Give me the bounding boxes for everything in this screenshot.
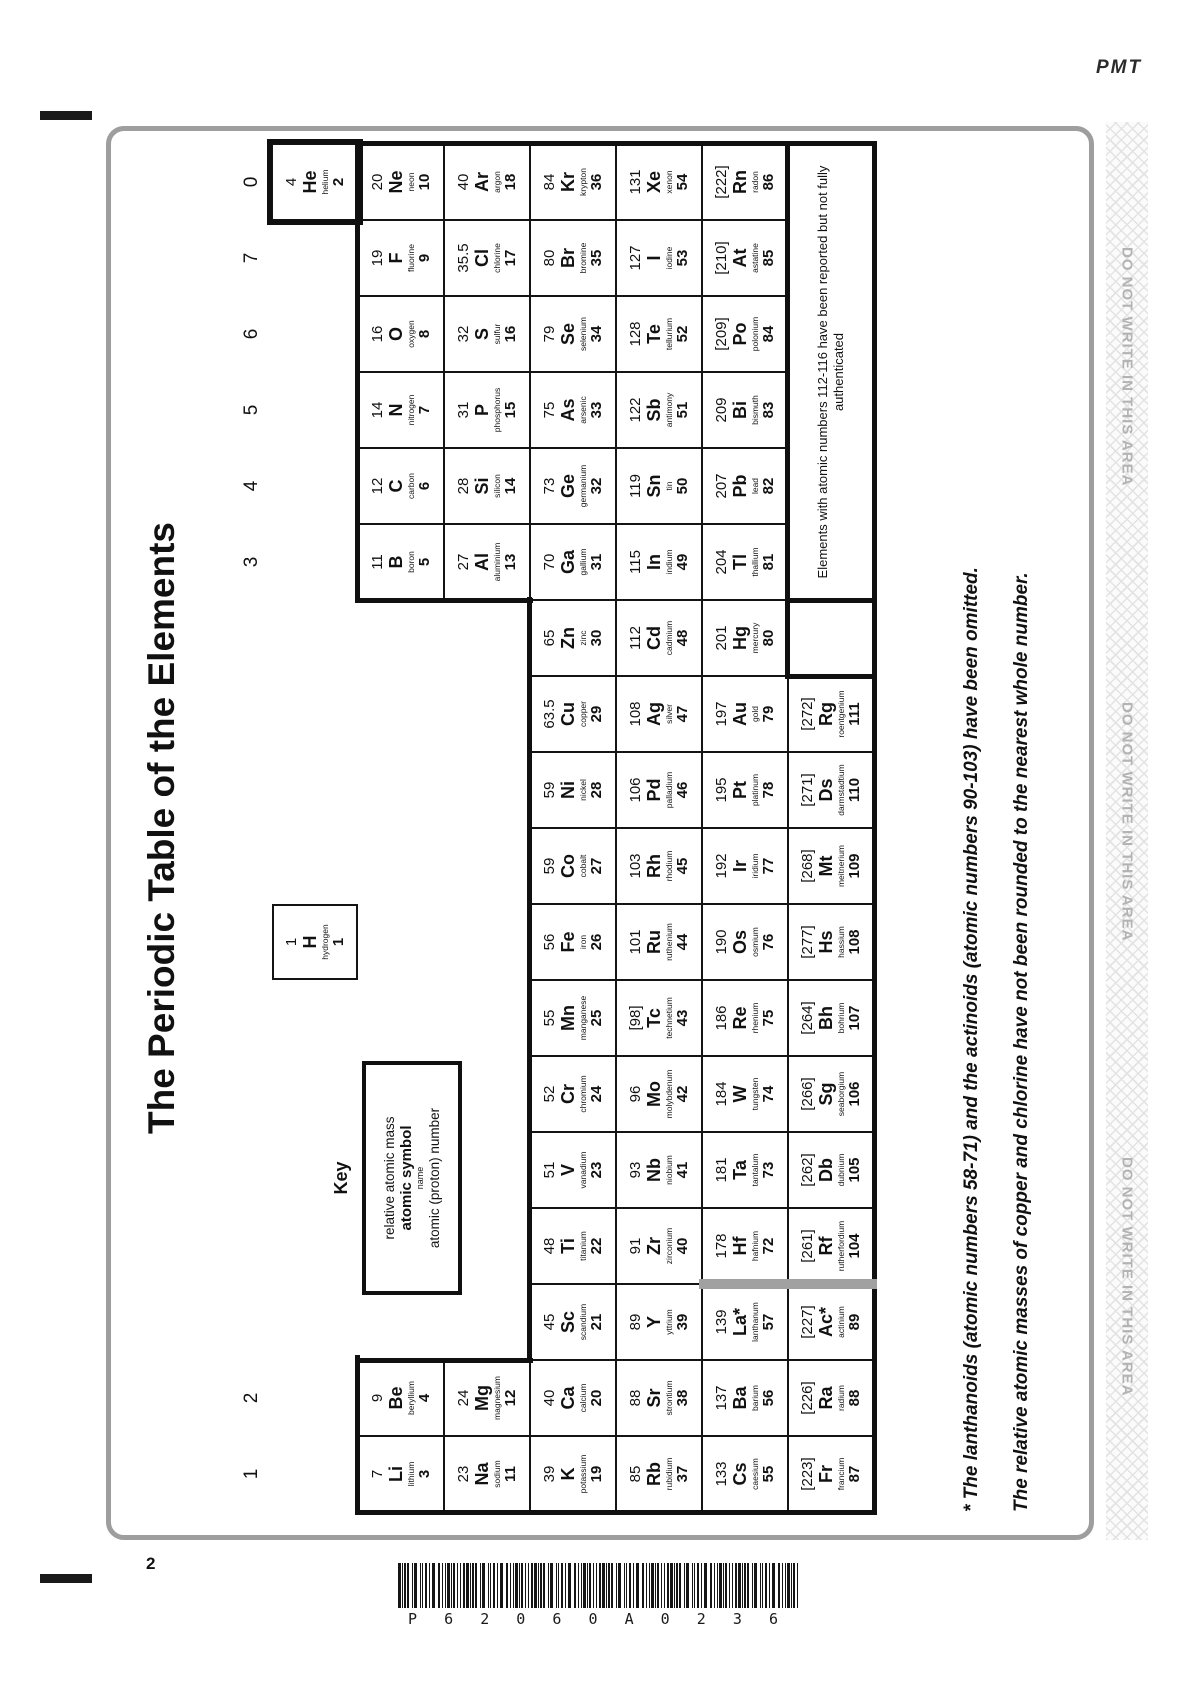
element-symbol: At — [730, 249, 750, 268]
element-name: tin — [664, 482, 674, 491]
element-cell-Xe: 131Xexenon54 — [616, 144, 702, 220]
element-name: lanthanum — [750, 1302, 760, 1342]
element-number: 5 — [416, 558, 433, 566]
element-symbol: Ag — [644, 702, 664, 726]
element-number: 37 — [674, 1466, 691, 1483]
element-name: palladium — [664, 772, 674, 808]
page-number: 2 — [146, 1554, 155, 1574]
element-number: 26 — [588, 934, 605, 951]
element-name: radon — [750, 171, 760, 193]
element-number: 76 — [760, 934, 777, 951]
element-mass: [227] — [799, 1305, 816, 1338]
element-mass: 70 — [541, 554, 558, 571]
element-mass: 101 — [627, 929, 644, 954]
element-cell-Ba: 137Babarium56 — [702, 1360, 788, 1436]
barcode-char: 0 — [661, 1610, 670, 1628]
element-number: 13 — [502, 554, 519, 571]
element-number: 84 — [760, 326, 777, 343]
element-name: rutherfordium — [836, 1221, 846, 1272]
element-number: 47 — [674, 706, 691, 723]
element-mass: [271] — [799, 773, 816, 806]
element-cell-Fe: 56Feiron26 — [530, 904, 616, 980]
element-name: chromium — [578, 1075, 588, 1112]
element-symbol: Mn — [558, 1005, 578, 1031]
element-number: 51 — [674, 402, 691, 419]
element-mass: 23 — [455, 1466, 472, 1483]
element-cell-S: 32Ssulfur16 — [444, 296, 530, 372]
element-symbol: Br — [558, 248, 578, 268]
element-name: caesium — [750, 1458, 760, 1490]
element-number: 111 — [846, 702, 863, 725]
element-name: cobalt — [578, 855, 588, 878]
element-cell-Ar: 40Arargon18 — [444, 144, 530, 220]
element-name: zinc — [578, 630, 588, 645]
element-cell-Fr: [223]Frfrancium87 — [788, 1436, 874, 1512]
element-mass: 9 — [369, 1394, 386, 1402]
element-symbol: Ra — [816, 1387, 836, 1410]
element-mass: 80 — [541, 250, 558, 267]
group-label-7: 7 — [235, 220, 269, 296]
element-symbol: Sr — [644, 1389, 664, 1408]
element-cell-Sg: [266]Sgseaborgium106 — [788, 1056, 874, 1132]
element-mass: 195 — [713, 777, 730, 802]
element-symbol: Ne — [386, 171, 406, 194]
element-mass: 112 — [627, 626, 644, 650]
element-number: 15 — [502, 402, 519, 419]
element-mass: 28 — [455, 478, 472, 495]
element-mass: 108 — [627, 701, 644, 726]
group-label-4: 4 — [235, 448, 269, 524]
element-cell-Ti: 48Tititanium22 — [530, 1208, 616, 1284]
element-symbol: Cl — [472, 249, 492, 267]
element-number: 45 — [674, 858, 691, 875]
element-name: dubnium — [836, 1154, 846, 1187]
element-name: lithium — [406, 1462, 416, 1487]
element-name: hydrogen — [320, 924, 330, 959]
element-cell-Bi: 209Bibismuth83 — [702, 372, 788, 448]
element-symbol: Zr — [644, 1237, 664, 1255]
element-name: germanium — [578, 465, 588, 508]
element-name: rubidium — [664, 1458, 674, 1491]
element-cell-Y: 89Yyttrium39 — [616, 1284, 702, 1360]
element-number: 110 — [846, 778, 863, 802]
element-number: 28 — [588, 782, 605, 799]
element-number: 79 — [760, 706, 777, 723]
element-symbol: Te — [644, 324, 664, 344]
element-mass: 59 — [541, 782, 558, 799]
key-heading: Key — [331, 1061, 352, 1295]
element-cell-Tl: 204Tlthallium81 — [702, 524, 788, 600]
element-cell-Re: 186Rerhenium75 — [702, 980, 788, 1056]
element-mass: [277] — [799, 925, 816, 958]
outline-segment — [355, 1355, 360, 1515]
element-cell-Te: 128Tetellurium52 — [616, 296, 702, 372]
element-cell-Ag: 108Agsilver47 — [616, 676, 702, 752]
element-number: 16 — [502, 326, 519, 343]
element-number: 18 — [502, 174, 519, 191]
element-symbol: O — [386, 327, 406, 341]
element-symbol: Be — [386, 1387, 406, 1410]
element-name: francium — [836, 1458, 846, 1491]
barcode-char: 0 — [516, 1610, 525, 1628]
element-name: nitrogen — [406, 395, 416, 426]
element-symbol: F — [386, 253, 406, 264]
element-mass: 39 — [541, 1466, 558, 1483]
element-symbol: La* — [730, 1308, 750, 1336]
element-cell-Hs: [277]Hshassium108 — [788, 904, 874, 980]
element-cell-Ge: 73Gegermanium32 — [530, 448, 616, 524]
element-name: argon — [492, 171, 502, 193]
element-name: rhodium — [664, 851, 674, 882]
element-number: 109 — [846, 853, 863, 878]
rotated-periodic-table: The Periodic Table of the Elements 12345… — [107, 126, 1092, 1536]
element-symbol: K — [558, 1468, 578, 1481]
helium-bold-box — [267, 139, 363, 225]
element-mass: 115 — [627, 550, 644, 574]
element-number: 21 — [588, 1314, 605, 1331]
element-name: krypton — [578, 168, 588, 196]
element-mass: 14 — [369, 402, 386, 419]
element-number: 77 — [760, 858, 777, 875]
element-name: technetium — [664, 997, 674, 1039]
element-cell-Pt: 195Ptplatinum78 — [702, 752, 788, 828]
element-name: astatine — [750, 243, 760, 273]
element-cell-Pd: 106Pdpalladium46 — [616, 752, 702, 828]
element-symbol: Os — [730, 930, 750, 954]
element-symbol: Sn — [644, 475, 664, 498]
element-symbol: Rh — [644, 854, 664, 878]
element-cell-O: 16Ooxygen8 — [358, 296, 444, 372]
element-number: 86 — [760, 174, 777, 191]
element-cell-Tc: [98]Tctechnetium43 — [616, 980, 702, 1056]
element-mass: 131 — [627, 169, 644, 194]
element-symbol: P — [472, 404, 492, 416]
element-cell-V: 51Vvanadium23 — [530, 1132, 616, 1208]
element-mass: 137 — [713, 1385, 730, 1410]
element-symbol: Sg — [816, 1083, 836, 1106]
element-number: 35 — [588, 250, 605, 267]
element-symbol: Mo — [644, 1081, 664, 1107]
element-mass: [226] — [799, 1381, 816, 1414]
element-number: 11 — [502, 1466, 519, 1482]
element-symbol: Ru — [644, 930, 664, 954]
element-name: iron — [578, 935, 588, 949]
element-cell-Zr: 91Zrzirconium40 — [616, 1208, 702, 1284]
key-box: relative atomic mass atomic symbol name … — [362, 1061, 462, 1295]
element-number: 40 — [674, 1238, 691, 1255]
element-mass: 1 — [283, 938, 300, 946]
element-name: sulfur — [492, 324, 502, 345]
element-name: aluminium — [492, 543, 502, 582]
element-mass: 63.5 — [541, 699, 558, 728]
outline-segment — [355, 1510, 877, 1515]
element-number: 44 — [674, 934, 691, 951]
element-name: darmstadtium — [836, 764, 846, 816]
element-name: zirconium — [664, 1228, 674, 1264]
key-line-mass: relative atomic mass — [381, 1116, 398, 1239]
element-name: rhenium — [750, 1003, 760, 1034]
element-number: 104 — [846, 1233, 863, 1258]
element-symbol: Co — [558, 854, 578, 878]
element-name: polonium — [750, 317, 760, 352]
barcode-char: 6 — [769, 1610, 778, 1628]
element-number: 17 — [502, 250, 519, 267]
element-symbol: Ba — [730, 1387, 750, 1410]
element-number: 12 — [502, 1390, 519, 1407]
strip-text-label: DO NOT WRITE IN THIS AREA — [1119, 702, 1136, 941]
element-name: beryllium — [406, 1381, 416, 1415]
barcode-bars — [398, 1563, 808, 1608]
element-symbol: S — [472, 328, 492, 340]
outline-segment — [785, 674, 877, 679]
element-cell-Hf: 178Hfhafnium72 — [702, 1208, 788, 1284]
element-cell-P: 31Pphosphorus15 — [444, 372, 530, 448]
element-cell-Ta: 181Tatantalum73 — [702, 1132, 788, 1208]
element-mass: 93 — [627, 1162, 644, 1179]
element-number: 48 — [674, 630, 691, 647]
element-number: 53 — [674, 250, 691, 267]
barcode-char: P — [408, 1610, 417, 1628]
element-mass: 16 — [369, 326, 386, 343]
element-number: 25 — [588, 1010, 605, 1027]
element-cell-Ir: 192Iriridium77 — [702, 828, 788, 904]
crop-mark-bottom-left — [40, 1574, 92, 1583]
key-line-symbol: atomic symbol — [398, 1125, 415, 1230]
element-number: 87 — [846, 1466, 863, 1483]
element-number: 9 — [416, 254, 433, 262]
element-number: 89 — [846, 1314, 863, 1331]
element-mass: 51 — [541, 1162, 558, 1179]
element-cell-La: 139La*lanthanum57 — [702, 1284, 788, 1360]
element-number: 52 — [674, 326, 691, 343]
element-symbol: Fe — [558, 932, 578, 953]
element-name: seaborgium — [836, 1072, 846, 1116]
barcode-char: 3 — [733, 1610, 742, 1628]
element-symbol: Ir — [730, 860, 750, 872]
element-number: 27 — [588, 858, 605, 875]
element-mass: [209] — [713, 317, 730, 350]
element-number: 19 — [588, 1466, 605, 1483]
element-symbol: C — [386, 480, 406, 493]
element-cell-F: 19Ffluorine9 — [358, 220, 444, 296]
element-symbol: Cs — [730, 1463, 750, 1486]
element-cell-Sc: 45Scscandium21 — [530, 1284, 616, 1360]
element-symbol: Au — [730, 702, 750, 726]
element-name: arsenic — [578, 396, 588, 423]
element-number: 6 — [416, 482, 433, 490]
element-mass: [272] — [799, 697, 816, 730]
element-number: 7 — [416, 406, 433, 414]
element-name: nickel — [578, 779, 588, 801]
element-cell-I: 127Iiodine53 — [616, 220, 702, 296]
element-name: niobium — [664, 1155, 674, 1185]
element-number: 80 — [760, 630, 777, 647]
element-mass: 35.5 — [455, 243, 472, 272]
element-mass: 181 — [713, 1157, 730, 1182]
element-cell-Pb: 207Pblead82 — [702, 448, 788, 524]
element-number: 23 — [588, 1162, 605, 1179]
element-mass: 55 — [541, 1010, 558, 1027]
element-cell-Ne: 20Neneon10 — [358, 144, 444, 220]
element-symbol: Na — [472, 1463, 492, 1486]
element-name: strontium — [664, 1381, 674, 1416]
element-number: 50 — [674, 478, 691, 495]
element-symbol: V — [558, 1164, 578, 1176]
element-mass: 89 — [627, 1314, 644, 1331]
element-number: 38 — [674, 1390, 691, 1407]
element-mass: 133 — [713, 1461, 730, 1486]
element-mass: 122 — [627, 397, 644, 422]
element-name: copper — [578, 701, 588, 727]
element-name: vanadium — [578, 1152, 588, 1189]
element-cell-C: 12Ccarbon6 — [358, 448, 444, 524]
element-mass: [266] — [799, 1077, 816, 1110]
element-symbol: Cr — [558, 1084, 578, 1104]
element-number: 33 — [588, 402, 605, 419]
element-cell-Sn: 119Sntin50 — [616, 448, 702, 524]
element-mass: 56 — [541, 934, 558, 951]
element-name: xenon — [664, 170, 674, 193]
element-mass: 186 — [713, 1005, 730, 1030]
element-cell-B: 11Bboron5 — [358, 524, 444, 600]
element-number: 74 — [760, 1086, 777, 1103]
strip-text-1: DO NOT WRITE IN THIS AREA — [1106, 222, 1148, 512]
element-name: tellurium — [664, 318, 674, 350]
element-name: manganese — [578, 996, 588, 1040]
element-name: hafnium — [750, 1231, 760, 1261]
element-mass: [262] — [799, 1153, 816, 1186]
key-line-number: atomic (proton) number — [426, 1108, 443, 1248]
element-cell-Ra: [226]Raradium88 — [788, 1360, 874, 1436]
element-cell-Cs: 133Cscaesium55 — [702, 1436, 788, 1512]
element-symbol: N — [386, 404, 406, 417]
element-number: 57 — [760, 1314, 777, 1331]
element-number: 34 — [588, 326, 605, 343]
element-cell-Rf: [261]Rfrutherfordium104 — [788, 1208, 874, 1284]
element-name: hassium — [836, 926, 846, 958]
element-cell-Mt: [268]Mtmeitnerium109 — [788, 828, 874, 904]
authentication-note: Elements with atomic numbers 112-116 hav… — [791, 147, 871, 597]
element-name: platinum — [750, 774, 760, 806]
key-line-name: name — [415, 1167, 426, 1190]
element-number: 83 — [760, 402, 777, 419]
barcode-text: P62060A0236 — [408, 1610, 778, 1628]
element-mass: 40 — [455, 174, 472, 191]
outline-segment — [355, 598, 533, 603]
element-cell-Br: 80Brbromine35 — [530, 220, 616, 296]
element-name: chlorine — [492, 243, 502, 273]
element-symbol: Cd — [644, 626, 664, 650]
element-name: lead — [750, 478, 760, 494]
group-label-2: 2 — [235, 1360, 269, 1436]
element-symbol: Ge — [558, 474, 578, 498]
element-name: actinium — [836, 1306, 846, 1338]
element-number: 55 — [760, 1466, 777, 1483]
element-name: molybdenum — [664, 1070, 674, 1119]
element-cell-Zn: 65Znzinc30 — [530, 600, 616, 676]
element-number: 22 — [588, 1238, 605, 1255]
element-number: 81 — [760, 554, 777, 571]
element-name: indium — [664, 549, 674, 574]
element-name: sodium — [492, 1460, 502, 1487]
element-number: 8 — [416, 330, 433, 338]
element-number: 46 — [674, 782, 691, 799]
element-cell-Na: 23Nasodium11 — [444, 1436, 530, 1512]
element-mass: 48 — [541, 1238, 558, 1255]
element-mass: 178 — [713, 1233, 730, 1258]
element-cell-Bh: [264]Bhbohrium107 — [788, 980, 874, 1056]
strip-text-3: DO NOT WRITE IN THIS AREA — [1106, 1132, 1148, 1422]
element-name: thallium — [750, 547, 760, 576]
element-cell-Rb: 85Rbrubidium37 — [616, 1436, 702, 1512]
element-symbol: Sc — [558, 1311, 578, 1333]
element-mass: 127 — [627, 245, 644, 270]
element-mass: 128 — [627, 321, 644, 346]
barcode-char: 6 — [444, 1610, 453, 1628]
element-name: bohrium — [836, 1003, 846, 1034]
element-mass: 20 — [369, 174, 386, 191]
element-symbol: Rb — [644, 1462, 664, 1486]
element-name: mercury — [750, 623, 760, 654]
element-mass: 209 — [713, 397, 730, 422]
element-number: 41 — [674, 1162, 691, 1179]
element-mass: 139 — [713, 1309, 730, 1334]
element-name: osmium — [750, 927, 760, 957]
element-symbol: Pb — [730, 475, 750, 498]
element-cell-H: 1Hhydrogen1 — [272, 904, 358, 980]
element-cell-W: 184Wtungsten74 — [702, 1056, 788, 1132]
element-cell-Sb: 122Sbantimony51 — [616, 372, 702, 448]
element-symbol: Mt — [816, 856, 836, 877]
element-mass: 192 — [713, 853, 730, 878]
element-cell-Po: [209]Popolonium84 — [702, 296, 788, 372]
element-mass: 11 — [369, 554, 386, 570]
element-mass: 84 — [541, 174, 558, 191]
element-number: 39 — [674, 1314, 691, 1331]
element-symbol: Ca — [558, 1387, 578, 1410]
element-mass: 45 — [541, 1314, 558, 1331]
element-number: 107 — [846, 1005, 863, 1030]
element-name: silver — [664, 704, 674, 724]
element-mass: 197 — [713, 701, 730, 726]
element-cell-Mo: 96Momolybdenum42 — [616, 1056, 702, 1132]
element-number: 42 — [674, 1086, 691, 1103]
crop-mark-top-left — [40, 111, 92, 120]
element-name: antimony — [664, 393, 674, 428]
element-mass: 24 — [455, 1390, 472, 1407]
element-symbol: Ga — [558, 550, 578, 574]
element-mass: 27 — [455, 554, 472, 571]
barcode-char: A — [625, 1610, 634, 1628]
element-cell-Ca: 40Cacalcium20 — [530, 1360, 616, 1436]
element-symbol: Db — [816, 1158, 836, 1182]
element-cell-Co: 59Cocobalt27 — [530, 828, 616, 904]
element-name: selenium — [578, 317, 588, 351]
element-symbol: Hf — [730, 1237, 750, 1256]
note-line-2: authenticated — [831, 333, 847, 411]
element-cell-Ru: 101Ruruthenium44 — [616, 904, 702, 980]
lanthanoid-gap-divider — [699, 1279, 877, 1289]
element-number: 10 — [416, 174, 433, 191]
element-cell-Kr: 84Krkrypton36 — [530, 144, 616, 220]
element-symbol: As — [558, 399, 578, 422]
element-name: iridium — [750, 853, 760, 878]
element-mass: 31 — [455, 402, 472, 419]
element-symbol: Y — [644, 1316, 664, 1328]
element-name: iodine — [664, 247, 674, 270]
element-name: magnesium — [492, 1376, 502, 1420]
element-name: titanium — [578, 1231, 588, 1261]
